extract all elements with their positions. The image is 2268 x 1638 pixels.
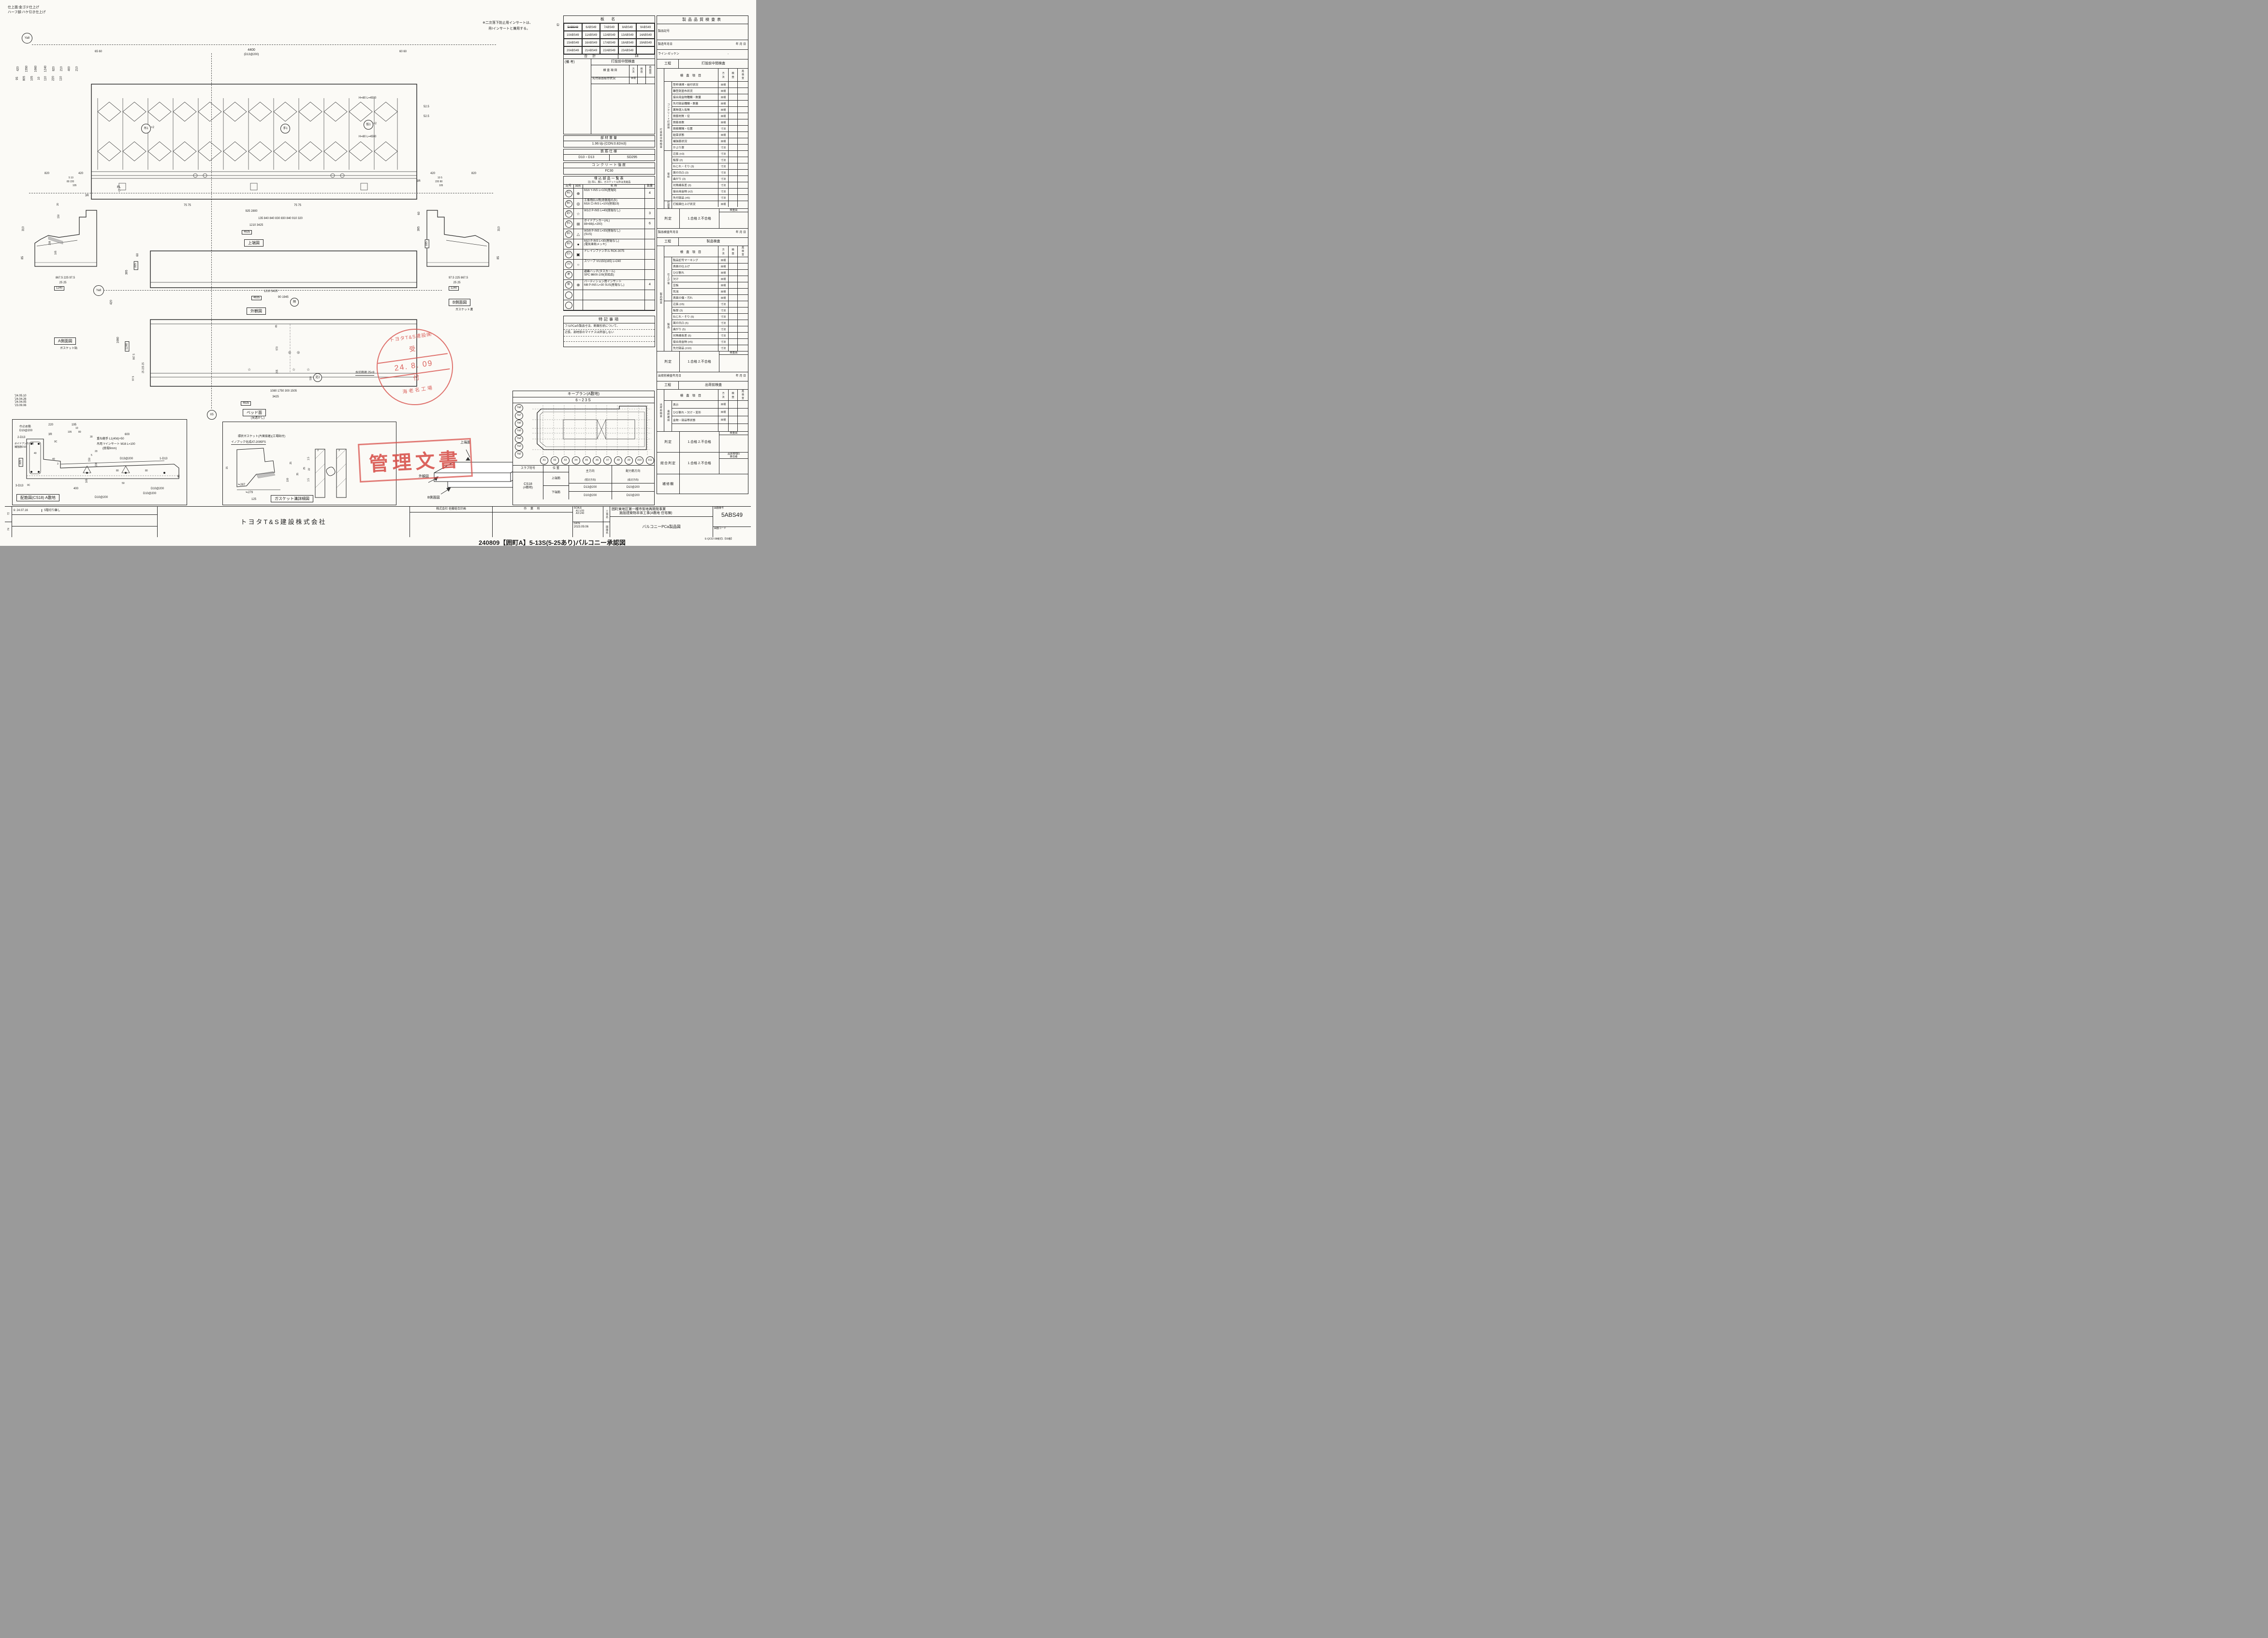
- grid-bubble-ya: Ya8: [515, 404, 523, 412]
- b-side-sub: ガスケット溝: [449, 308, 480, 312]
- embed-name-2: M8 P-INS L=30 SUS(座堀なし): [584, 284, 644, 287]
- inspection-item: ひび割れ・欠け・変形: [672, 410, 718, 414]
- dim: 335: [19, 458, 23, 467]
- special-title: 特記事項: [564, 316, 655, 323]
- rebar-spec-title: 鉄筋仕様: [564, 149, 655, 155]
- plate-title: 板 名: [564, 16, 655, 23]
- mini-title: 打設前中間検査: [591, 59, 655, 65]
- plate-cell: 7ABS49: [600, 23, 618, 31]
- embed-figure-icon: ○: [573, 260, 583, 269]
- dim: 1660: [117, 337, 120, 343]
- col-method: 方 法: [718, 246, 728, 257]
- dim: 25 225 25: [142, 363, 145, 373]
- dim: 820: [471, 172, 476, 175]
- grid-bubble-x: X4: [572, 456, 580, 465]
- dim: 10 5: [438, 177, 442, 180]
- col-item: 検 査 項 目: [664, 390, 718, 400]
- embed-figure-icon: △: [573, 229, 583, 239]
- callout-tsuri1: 吊1: [141, 124, 151, 133]
- dim-total: 4635: [241, 401, 251, 406]
- rebar-note-2: H=80 L=4500: [359, 135, 376, 139]
- concrete-value: FC30: [564, 168, 655, 174]
- embed-symbol: 仮1: [565, 200, 572, 207]
- stamp-date: 24. 8. 09: [394, 359, 434, 373]
- mini-col-method: 方 法: [629, 65, 637, 77]
- star-icon: ☆: [307, 367, 310, 372]
- line-label: ライン-ゼッケン: [657, 53, 679, 56]
- embed-qty: [644, 199, 655, 208]
- dim: 400: [73, 487, 78, 491]
- caption-top-view: 上端図: [244, 239, 263, 247]
- inspection-method: 寸法: [718, 301, 728, 307]
- keyplan-box: キープラン(A敷地) 6~23S Ya8Ya7Ya6Ya5Ya4Ya3Ya2 X…: [512, 391, 655, 505]
- inspection-item: 接合用金物 (±5): [672, 339, 718, 344]
- plate-cell: 12ABS49: [600, 31, 618, 39]
- inspection-item: 面の凹凸 (5): [672, 321, 718, 325]
- dim: 25 25: [48, 281, 77, 285]
- caption-front-view: 外観図: [247, 307, 266, 315]
- mini-row-method: 目視: [629, 77, 637, 84]
- special-line1: フルPCaの製品寸法、断面形状について、: [564, 323, 655, 330]
- embed-col-name: 名 称: [583, 185, 644, 188]
- inspection-method: 寸法: [718, 326, 728, 332]
- rebar-label: D13@200: [120, 457, 133, 461]
- rebar-note-1: H=80 L=4500: [359, 97, 376, 100]
- inspection-method: 目視: [718, 107, 728, 113]
- sleeve-icon: ◎: [297, 351, 300, 355]
- concrete-block: コンクリート強度 FC30: [563, 162, 655, 175]
- inspection-method: 目視: [718, 119, 728, 125]
- rebar-label: 1-D13: [160, 457, 167, 461]
- rebar-grade: SD295: [609, 155, 655, 161]
- grid-bubble-x: X10: [635, 456, 644, 465]
- inspection-method: 寸法: [718, 320, 728, 326]
- inspection-method: 目視: [718, 295, 728, 301]
- inspection-method: 目視: [718, 138, 728, 144]
- rebar-label: D10@200: [151, 487, 164, 491]
- embed-qty: 3: [644, 209, 655, 219]
- embed-figure-icon: [573, 270, 583, 279]
- dim: 1.5: [308, 478, 311, 482]
- dim: 335: [134, 261, 138, 270]
- finish-note-line1: 仕上面:金ゴテ仕上げ: [8, 6, 39, 10]
- after-label: 打設後: [667, 201, 670, 208]
- dim: 80: [145, 470, 148, 473]
- dim-total: 1240: [449, 286, 459, 291]
- col-recheck: 再 検 査: [737, 246, 748, 257]
- middle-column: 板 名 5ABS49 6ABS497ABS498ABS499ABS4910ABS…: [563, 15, 655, 347]
- inspection-method: 目視: [718, 416, 728, 424]
- slab-r2b: D10@200: [612, 492, 655, 499]
- dim: 220: [48, 424, 53, 427]
- dim: 165: [55, 251, 58, 255]
- slab-h4: 配力筋方向: [626, 470, 640, 473]
- embed-name-2: SPC Ⅲ600-109(支給品): [584, 274, 644, 277]
- inspection-method: 目視: [718, 276, 728, 282]
- inspection-item: かぶり厚: [672, 145, 718, 149]
- inspection-method: 寸法: [718, 333, 728, 338]
- drawing-name: バルコニーPCa製品図: [610, 517, 713, 537]
- embed-figure-icon: ◎: [573, 199, 583, 208]
- embed-name-2: 88×88(L=200): [584, 223, 644, 226]
- caption-rebar-detail: 配筋図(CS18) A敷地: [16, 494, 59, 501]
- inspection-method: 目視: [718, 282, 728, 288]
- inspection-item: 異物混入有無: [672, 107, 718, 112]
- embed-figure-icon: ⊕: [573, 189, 583, 198]
- dim-total: 4635: [242, 230, 252, 234]
- after-item: 打設面仕上げ状況: [672, 202, 718, 206]
- rebar-label: ボイドアンカー用: [15, 443, 34, 446]
- inspection-item: 辺長 (±3): [672, 151, 718, 156]
- mini-row-item: 先付部品取付状況: [591, 77, 629, 84]
- date-value: 2023.09.06: [574, 526, 602, 529]
- overall-judge-label: 総合判定: [657, 453, 680, 474]
- dim-total: 4635: [251, 296, 262, 300]
- dim: 395: [126, 270, 129, 275]
- concrete-title: コンクリート強度: [564, 163, 655, 168]
- mini-col-recheck: 再 検 査: [645, 65, 655, 77]
- dim-span-sub: (D13@200): [232, 53, 271, 57]
- embed-qty: 6: [644, 219, 655, 229]
- grid-bubble-x: X8: [614, 456, 622, 465]
- plate-cell: 22ABS49: [600, 46, 618, 54]
- dim: 15: [226, 467, 229, 469]
- embed-figure-icon: ▣: [573, 249, 583, 259]
- dim: ≒279: [246, 491, 253, 495]
- revision-date: '24.04.05: [15, 401, 27, 404]
- inspection-item: 板厚 (2): [672, 158, 718, 162]
- dim: 65: [276, 325, 278, 328]
- a-side-drawing: [29, 185, 102, 275]
- slab-r1a: D13@200: [569, 483, 612, 492]
- dim-total: 1240: [54, 286, 64, 291]
- revision-dates: '24.05.10'24.04.26'24.04.05'23.09.06: [15, 395, 27, 407]
- dim: 1210 3425: [150, 224, 363, 227]
- inspection-item: 気泡: [672, 289, 718, 293]
- plate-cell: 18ABS49: [618, 39, 637, 46]
- col-item: 検 査 項 目: [664, 69, 718, 81]
- inspection-method: 寸法: [718, 157, 728, 163]
- group-label: 型枠: [667, 173, 670, 178]
- dim: 75 75: [184, 204, 191, 207]
- embed-symbol: 足2: [565, 210, 572, 218]
- inspection-method: 目視: [718, 132, 728, 138]
- inspection-method: 目視: [718, 88, 728, 94]
- revision-date: '24.05.10: [15, 395, 27, 398]
- process-label-1: 工程: [657, 59, 679, 68]
- inspection-item: 対角線長差 (3): [672, 183, 718, 187]
- site-office-label: 作 業 所: [493, 507, 572, 512]
- rev-col-2: 正: [5, 522, 12, 537]
- note-3r: 3R: [85, 194, 89, 198]
- plate-cell: 6ABS49: [582, 23, 600, 31]
- plate-total-value: 18: [618, 55, 655, 58]
- rebar-label: D10@200: [143, 492, 156, 496]
- dim: 420: [78, 172, 83, 175]
- grid-bubble-ya: Ya7: [515, 412, 523, 420]
- inspection-method: 寸法: [718, 170, 728, 175]
- embed-qty: [644, 249, 655, 259]
- gasket-note-1: 環状ガスケット(片面接着)(工場貼付): [238, 435, 285, 439]
- process-label-2: 工程: [657, 238, 679, 246]
- embed-symbol: 手1: [565, 220, 572, 228]
- mini-col-check: 検 査: [637, 65, 645, 77]
- dim: 60 60: [399, 50, 407, 54]
- inspection-method: 寸法: [718, 195, 728, 201]
- dim: 22: [308, 468, 311, 471]
- s2-ymd: 年 月 日: [736, 231, 748, 234]
- embed-name-1: W3/8 P-INS L=30(座堀なし): [584, 230, 644, 233]
- overall-judge-value: 1.合格 2.不合格: [680, 453, 719, 474]
- group-label: コンクリート打設前: [667, 103, 670, 129]
- inspection-method: 目視: [718, 94, 728, 100]
- embed-symbol: 打1: [565, 251, 572, 258]
- rebar-label: 3R: [48, 433, 52, 437]
- rebar-size: D10・D13: [564, 155, 609, 161]
- inspection-method: 寸法: [718, 189, 728, 194]
- dim: 310: [498, 226, 501, 231]
- slab-r1: 上端筋: [543, 472, 569, 486]
- inspection-item: 曲がり (5): [672, 327, 718, 331]
- embed-name-1: ドレインファンネル RCK-3075: [584, 250, 644, 253]
- inspector-label: 検査員: [719, 351, 748, 355]
- plate-cell: 11ABS49: [582, 31, 600, 39]
- grid-bubble-ya: Ya4: [515, 435, 523, 443]
- dim: 110: [310, 377, 313, 380]
- grid-bubble-x: X9: [625, 456, 633, 465]
- plate-cell: 21ABS49: [582, 46, 600, 54]
- process-label-3: 工程: [657, 381, 679, 389]
- revision-date-cell: 24.07.16: [16, 509, 42, 512]
- embed-name-1: パーティション用インサート: [584, 280, 644, 284]
- after-method: 目視: [718, 201, 728, 207]
- embed-symbol: [565, 292, 572, 299]
- dim: 3425: [203, 395, 348, 399]
- inspection-method: 目視: [718, 101, 728, 106]
- keyplan-ya-bubbles: Ya8Ya7Ya6Ya5Ya4Ya3Ya2: [515, 404, 523, 458]
- plate-cell: 10ABS49: [564, 31, 582, 39]
- grid-bubble-x: X5: [583, 456, 591, 465]
- slab-table: スラブ符号 CS18 (A敷地) 位 置 上端筋 下端筋 主方向(短辺方向) D…: [513, 465, 654, 499]
- gasket-joint-drawing: [309, 447, 353, 499]
- inspection-method: 寸法: [718, 151, 728, 157]
- inspection-method: 寸法: [718, 339, 728, 345]
- embed-name-2: M16 ロ-INS L=100(座堀19): [584, 203, 644, 206]
- fl-label: FL: [117, 186, 121, 190]
- col-recheck: 再 検 査: [737, 390, 748, 400]
- inspection-method: 寸法: [718, 314, 728, 320]
- revision-date: '24.04.26: [15, 398, 27, 401]
- embed-figure-icon: [573, 300, 583, 310]
- embed-symbol: 吊1: [565, 190, 572, 197]
- col-method: 方 法: [718, 390, 728, 400]
- dim: 5: [91, 454, 92, 457]
- project-line-2: 施設建築物本体工事(A敷地 住宅棟): [612, 512, 711, 515]
- rebar-label: 吊用 Yインサート M16 L=100: [97, 443, 135, 446]
- iso-label-bside: B側面図: [427, 496, 440, 500]
- embed-name-1: W1/2 P-INS L=40(座堀なし): [584, 209, 644, 213]
- grid-bubble-x: X2: [551, 456, 559, 465]
- star-icon: ☆: [292, 367, 295, 372]
- caption-b-side: B側面図: [449, 299, 470, 306]
- embed-name-1: 工事用ELV用(奇数階のみ): [584, 199, 644, 203]
- plate-cell: 9ABS49: [636, 23, 655, 31]
- embed-name-2: (SUS): [584, 233, 644, 236]
- callout-kari1: 仮1: [364, 120, 373, 130]
- inspection-method: 目視: [718, 113, 728, 119]
- special-notes: 特記事項 フルPCaの製品寸法、断面形状について、 辺長、部材厚のマイナスは許容…: [563, 316, 655, 347]
- dim: 1.5: [308, 457, 311, 460]
- inspector-label: 検査員: [719, 209, 748, 212]
- front-view-drawing: [150, 250, 417, 288]
- inspection-item: 鉄筋材質・径: [672, 114, 718, 118]
- embed-qty: [644, 270, 655, 279]
- dim: 52.5: [424, 105, 429, 109]
- grid-line-ya8-bed: [103, 290, 442, 291]
- mfg-date-label: 製造年月日: [657, 43, 673, 46]
- dim: 85: [178, 475, 181, 478]
- dim: 867.5 225 97.5: [29, 277, 102, 280]
- grid-bubble-x: X1: [540, 456, 548, 465]
- revision-no: ①: [12, 509, 16, 512]
- caption-a-side: A側面図: [54, 337, 76, 345]
- grid-bubble-ya: Ya2: [515, 451, 523, 458]
- inspection-item: 表面の傷・汚れ: [672, 295, 718, 300]
- plate-cell: 8ABS49: [618, 23, 637, 31]
- mfg-date-ymd: 年 月 日: [736, 43, 748, 46]
- judge-value-2: 1.合格 2.不合格: [680, 351, 719, 372]
- rebar-spec-block: 鉄筋仕様 D10・D13 SD295: [563, 149, 655, 161]
- drawing-name-label: 図面名: [605, 526, 608, 534]
- inspection-item: 製品記号マーキング: [672, 258, 718, 262]
- grid-bubble-ya8-bed: Ya8: [93, 285, 104, 296]
- embed-qty: [644, 229, 655, 239]
- embed-symbol: [565, 302, 572, 309]
- rebar-label: (座堀9mm): [102, 447, 117, 451]
- gasket-left-drawing: [227, 447, 300, 499]
- weight-title: 部材重量: [564, 136, 655, 141]
- inspection-method: 寸法: [718, 307, 728, 313]
- dim: 20: [95, 451, 98, 453]
- dim: 970: [276, 347, 279, 351]
- form-code: E-QC02-08様式1【00版】: [705, 538, 733, 541]
- embed-qty: [644, 300, 655, 310]
- plate-cell: 14ABS49: [636, 31, 655, 39]
- embed-name-2: (電気亜鉛メッキ): [584, 243, 644, 247]
- inspection-item: 曲がり (3): [672, 176, 718, 181]
- dim: 150: [88, 458, 91, 462]
- embed-figure-icon: ⊞: [573, 219, 583, 229]
- top-view-drawing: [91, 84, 417, 200]
- s3-date-label: 出荷前検査年月日: [657, 375, 681, 378]
- gasket-note-2: イノアック化成AT-2095FS: [231, 441, 266, 445]
- embed-figure-icon: ●: [573, 239, 583, 249]
- slab-h2: 位 置: [543, 466, 569, 472]
- inspection-item: 型枠清掃・組付状況: [672, 82, 718, 87]
- dim: 5 10: [69, 177, 73, 180]
- col-item: 検 査 項 目: [664, 246, 718, 257]
- slab-r1b: D10@200: [612, 483, 655, 492]
- insert-note-1: ※二次落下防止用インサートは、: [483, 21, 533, 25]
- company-name: トヨタT&S建設株式会社: [240, 518, 326, 526]
- inspection-item: 板厚 (3): [672, 308, 718, 312]
- revision-circle: ①: [554, 21, 562, 29]
- top-view-left-dims: 4201550166012408202104002109580510510110…: [15, 63, 87, 82]
- plate-total-label: 合 計: [564, 55, 618, 58]
- embed-symbol: 本1: [565, 231, 572, 238]
- dim: 80: [116, 470, 119, 473]
- repair-label: 補修欄: [657, 474, 680, 494]
- inspection-item: 補強筋状況: [672, 139, 718, 143]
- inspection-item: 接合用金物 (±2): [672, 189, 718, 193]
- embed-symbol: 隔: [565, 281, 572, 289]
- control-document-stamp: 管理文書: [358, 438, 473, 483]
- embed-symbol: 本2: [565, 241, 572, 248]
- embed-qty: [644, 290, 655, 300]
- embed-symbol: 避: [565, 271, 572, 278]
- grid-bubble-x: X7: [603, 456, 612, 465]
- embed-name-1: 避難ハッチ(タスカール): [584, 270, 644, 274]
- inspection-item: 接合用金物種類・数量: [672, 95, 718, 99]
- dim: 1080 1750 300 1505: [150, 390, 417, 393]
- revision-date: '23.09.06: [15, 404, 27, 408]
- embed-figure-icon: ⊗: [573, 280, 583, 290]
- judge-value-1: 1.合格 2.不合格: [680, 209, 719, 228]
- dim: 420: [430, 172, 435, 175]
- embed-col-qty: 数量: [644, 185, 655, 188]
- inspection-method: 寸法: [718, 126, 728, 132]
- dim: 150: [58, 215, 60, 219]
- slab-r2a: D10@200: [569, 492, 612, 499]
- dim: 80: [78, 431, 81, 434]
- insert-note-2: 吊Ⅰインサートと兼用する。: [488, 27, 530, 31]
- rebar-label: D10@200: [19, 429, 32, 433]
- embed-qty: [644, 260, 655, 269]
- dim: 50: [122, 483, 125, 485]
- inspection-item: 辺長 (±5): [672, 302, 718, 306]
- inspection-item: 対角線長差 (5): [672, 333, 718, 337]
- rev-col-1: 訂: [5, 507, 12, 522]
- slab-h3b: (短辺方向): [585, 479, 596, 482]
- dim: 820: [44, 172, 49, 175]
- col-method: 方 法: [718, 69, 728, 81]
- caption-bed-view: ベッド面: [243, 409, 266, 416]
- special-line2: 辺長、部材厚のマイナスは許容しない: [564, 330, 655, 336]
- title-strip: 訂 正 ① 24.07.16 5階切り離し トヨタT&S建設株式会社 株式会社 …: [5, 506, 751, 537]
- callout-te1: 手1: [280, 124, 290, 133]
- embed-symbol: ス2: [565, 261, 572, 268]
- judge-label-2: 判定: [657, 351, 680, 372]
- dim: 85: [21, 256, 25, 260]
- plate-cell: 16ABS49: [582, 39, 600, 46]
- dim: 90 1945: [278, 296, 289, 299]
- line-value: -: [728, 53, 748, 56]
- inspection-item: 先付部品 (±10): [672, 346, 718, 350]
- embed-figure-icon: ☆: [573, 209, 583, 219]
- inspection-method: 目視: [718, 270, 728, 276]
- section1-outer-label: 打設前中間検査: [659, 128, 662, 148]
- group-label: 仕上げ後: [667, 273, 670, 285]
- dim: 3: [338, 450, 340, 453]
- plate-cell: 15ABS49: [564, 39, 582, 46]
- rebar-label: 重ね継手 L1(40d)+50: [97, 438, 124, 441]
- inspection-item: ねじれ・そり (3): [672, 164, 718, 168]
- inspection-method: [718, 424, 728, 431]
- judge-value-3: 1.合格 2.不合格: [680, 432, 719, 452]
- dim: 80 220: [67, 181, 74, 184]
- project-name-label: 工事名: [605, 510, 608, 519]
- process-value-2: 製品検査: [679, 240, 748, 244]
